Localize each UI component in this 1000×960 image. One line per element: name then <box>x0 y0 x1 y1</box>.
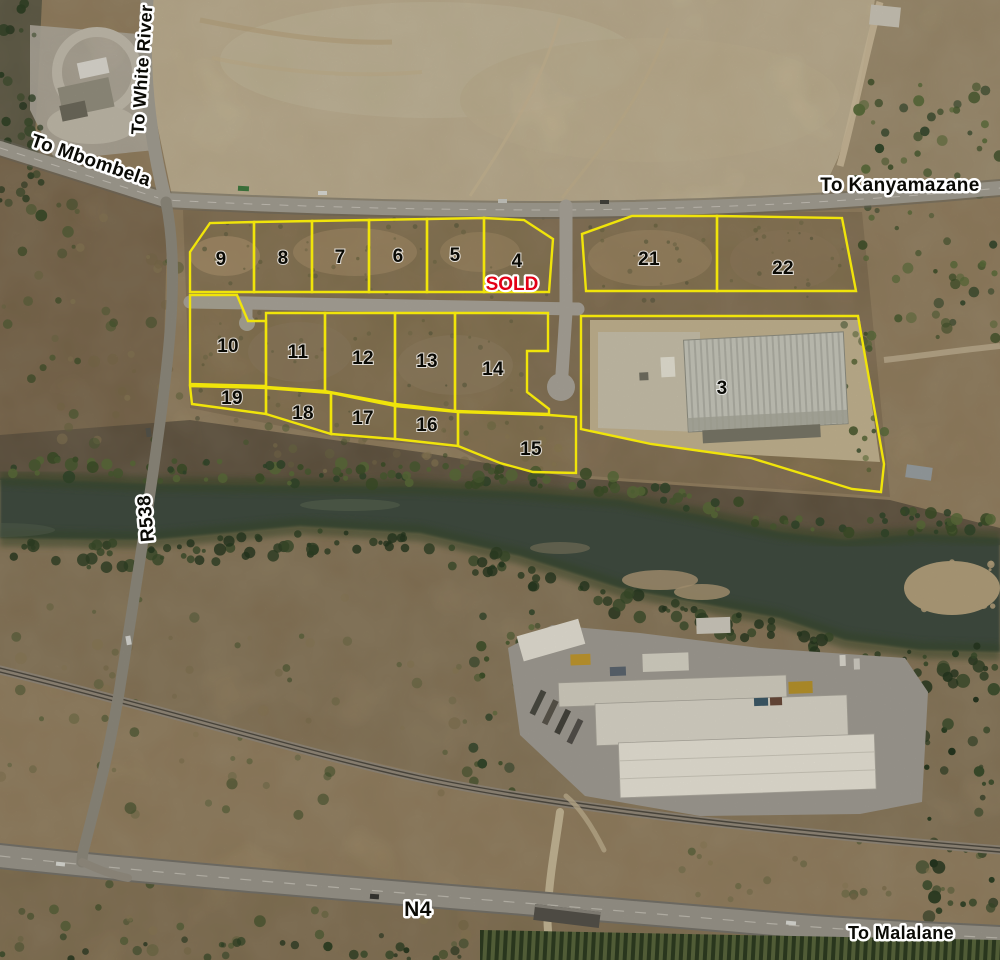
plot-label-4: 4 <box>512 251 523 272</box>
road-label-r538: R538 <box>134 494 159 543</box>
plot-label-16: 16 <box>416 415 438 436</box>
plot-label-22: 22 <box>772 258 794 279</box>
plot-boundary-22 <box>717 216 856 291</box>
plot-label-3: 3 <box>717 378 728 399</box>
road-label-kanyamazane: To Kanyamazane <box>820 175 979 196</box>
plot-label-21: 21 <box>638 249 660 270</box>
sold-badge: SOLD <box>486 274 539 295</box>
plot-label-8: 8 <box>278 248 289 269</box>
plot-label-10: 10 <box>217 336 239 357</box>
road-label-malalane: To Malalane <box>848 923 954 943</box>
road-label-n4: N4 <box>404 898 432 921</box>
plot-label-11: 11 <box>288 342 309 363</box>
plot-label-9: 9 <box>216 249 227 270</box>
plot-label-7: 7 <box>335 247 346 268</box>
plot-label-15: 15 <box>520 439 542 460</box>
plot-label-13: 13 <box>416 351 438 372</box>
plot-label-12: 12 <box>352 348 374 369</box>
plot-label-18: 18 <box>292 403 314 424</box>
satellite-map-canvas: 9 8 7 6 5 4 SOLD 21 22 10 11 12 13 14 19… <box>0 0 1000 960</box>
aerial-plot-map: 9 8 7 6 5 4 SOLD 21 22 10 11 12 13 14 19… <box>0 0 1000 960</box>
plot-label-14: 14 <box>482 359 504 380</box>
plot-label-17: 17 <box>352 408 374 429</box>
plot-label-5: 5 <box>450 245 461 266</box>
plot-label-6: 6 <box>393 246 404 267</box>
plot-label-19: 19 <box>221 388 243 409</box>
